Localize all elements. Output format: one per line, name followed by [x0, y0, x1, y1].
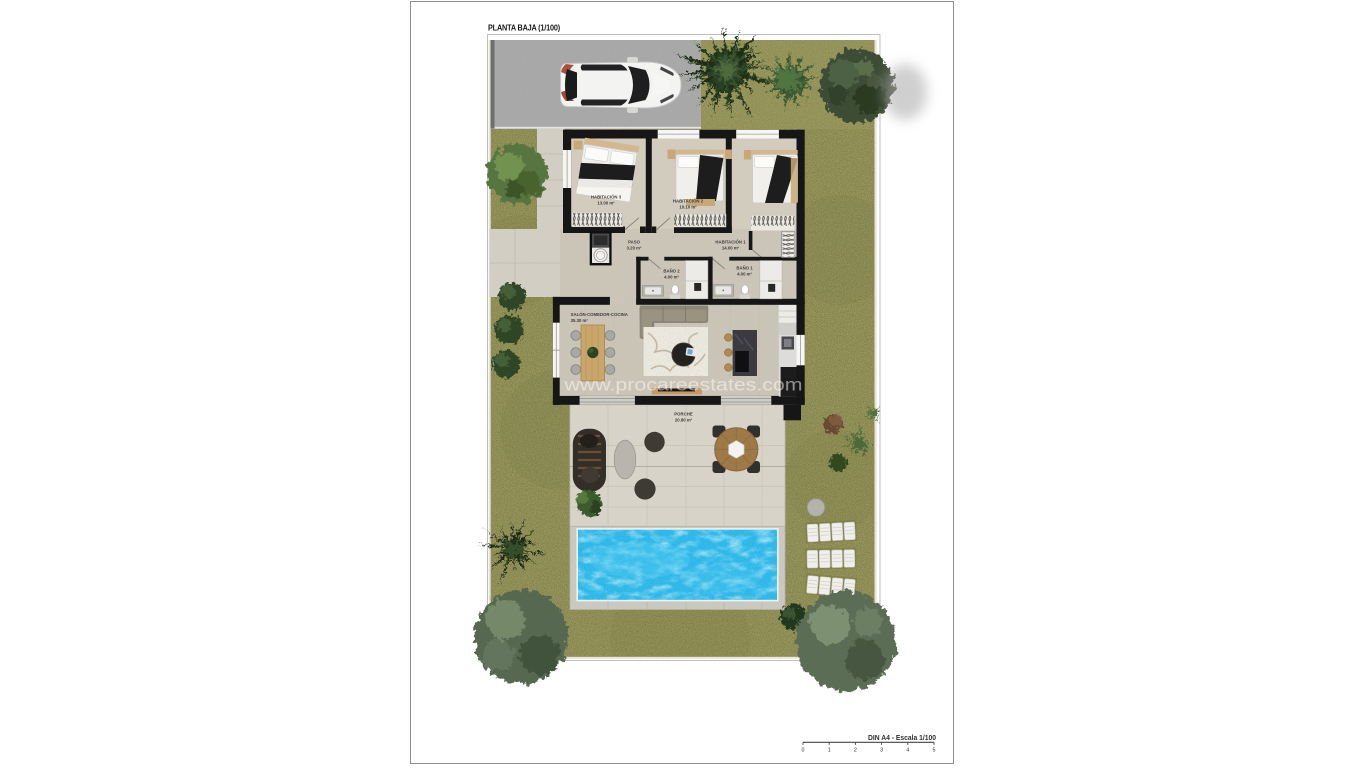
svg-text:PORCHE20.80 m²: PORCHE20.80 m²: [674, 412, 693, 423]
svg-text:BAÑO 24.00 m²: BAÑO 24.00 m²: [663, 269, 680, 280]
svg-text:BAÑO 14.00 m²: BAÑO 14.00 m²: [736, 266, 753, 277]
svg-text:3: 3: [880, 748, 883, 754]
svg-text:4: 4: [906, 748, 909, 754]
svg-text:2: 2: [854, 748, 857, 754]
svg-text:1: 1: [828, 748, 831, 754]
svg-text:www.procareestates.com: www.procareestates.com: [563, 375, 802, 395]
svg-text:PASO3.20 m²: PASO3.20 m²: [627, 240, 642, 251]
svg-text:0: 0: [802, 748, 805, 754]
svg-text:5: 5: [933, 748, 936, 754]
svg-text:PLANTA BAJA (1/100): PLANTA BAJA (1/100): [488, 24, 560, 33]
svg-text:DIN A4 - Escala 1/100: DIN A4 - Escala 1/100: [868, 733, 936, 742]
